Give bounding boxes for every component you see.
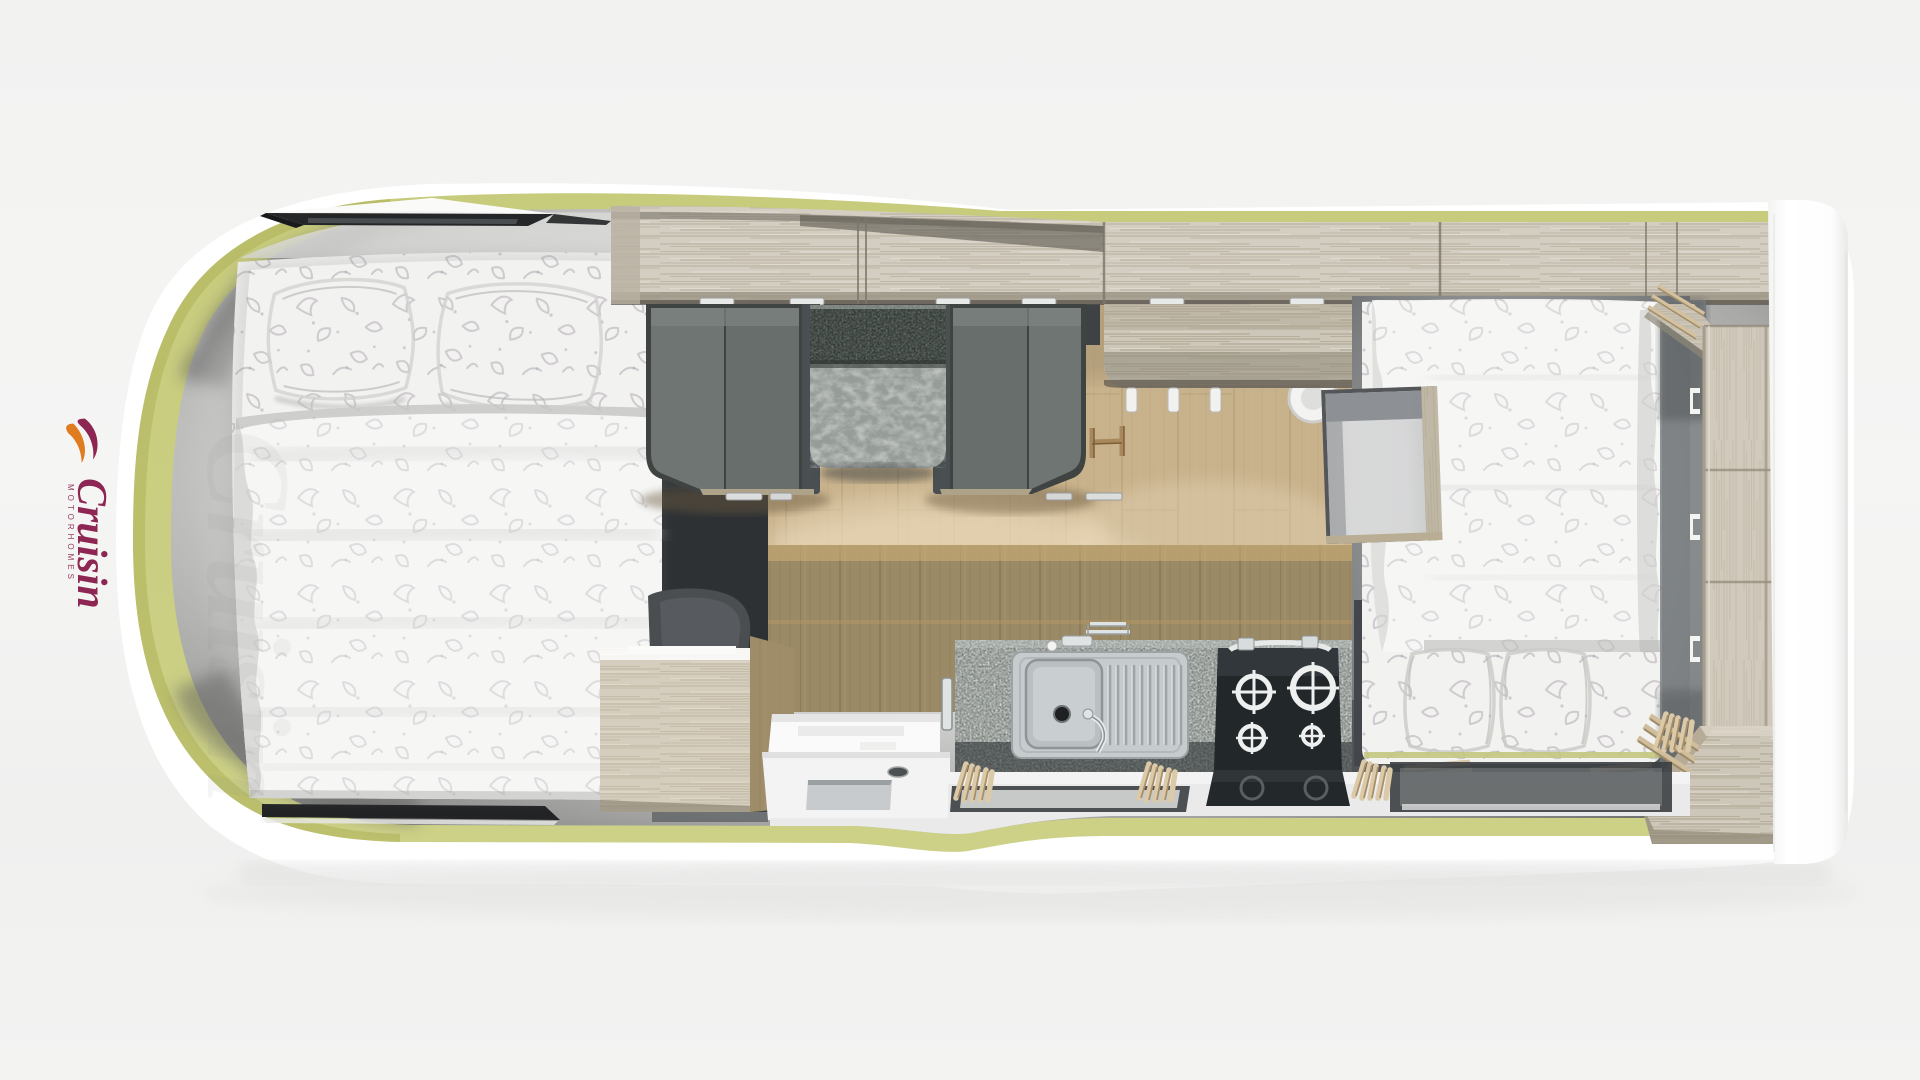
svg-text:MOTORHOMES: MOTORHOMES [66,484,75,583]
svg-text:Cruisin: Cruisin [182,430,315,804]
